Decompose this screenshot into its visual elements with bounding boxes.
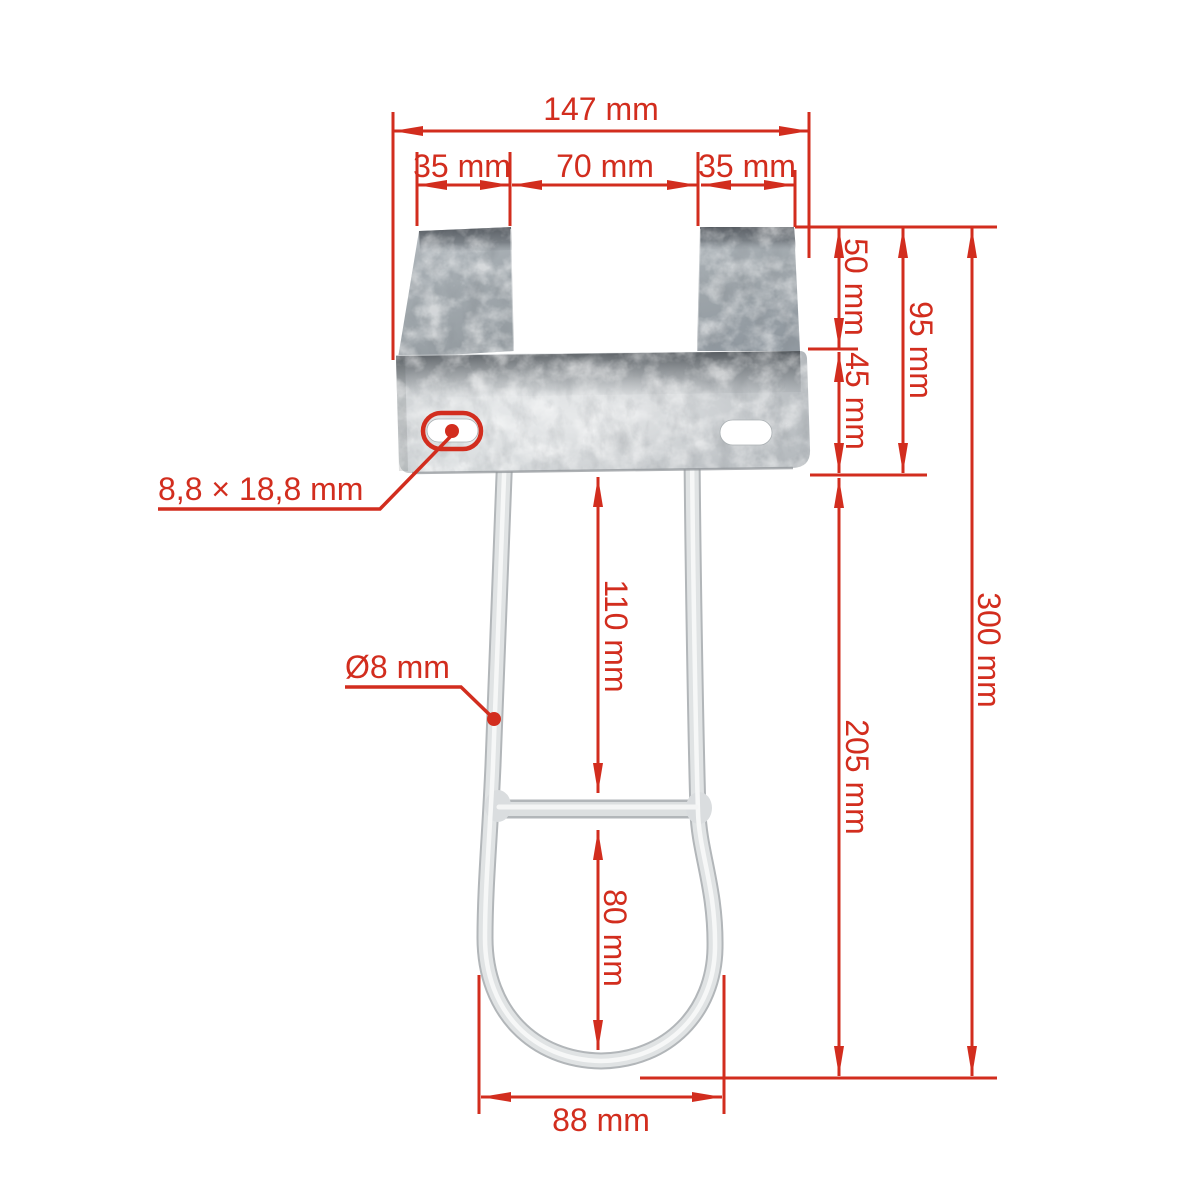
diagram-canvas: 147 mm 35 mm 70 mm 35 mm 50 mm 45 mm 95 … bbox=[0, 0, 1200, 1200]
label-center-gap: 70 mm bbox=[556, 148, 654, 184]
dimension-diagram: 147 mm 35 mm 70 mm 35 mm 50 mm 45 mm 95 … bbox=[0, 0, 1200, 1200]
label-upper-bow: 110 mm bbox=[598, 579, 634, 692]
label-total-width: 147 mm bbox=[543, 91, 659, 127]
label-bracket-height: 95 mm bbox=[903, 301, 939, 399]
label-left-tab: 35 mm bbox=[413, 148, 511, 184]
wire-callout-dot bbox=[487, 712, 501, 726]
label-tab-height: 50 mm bbox=[838, 238, 874, 336]
label-bow-length: 205 mm bbox=[839, 719, 875, 835]
dimension-labels: 147 mm 35 mm 70 mm 35 mm 50 mm 45 mm 95 … bbox=[158, 91, 1007, 1138]
label-bow-width: 88 mm bbox=[552, 1102, 650, 1138]
label-slot-size: 8,8 × 18,8 mm bbox=[158, 471, 363, 507]
label-plate-height: 45 mm bbox=[839, 352, 875, 450]
wire-callout-leader bbox=[345, 687, 494, 719]
label-overall-height: 300 mm bbox=[971, 592, 1007, 708]
label-wire-diameter: Ø8 mm bbox=[345, 649, 450, 685]
label-right-tab: 35 mm bbox=[698, 148, 796, 184]
slot-right bbox=[720, 420, 772, 445]
label-lower-bow: 80 mm bbox=[597, 889, 633, 987]
slot-callout-dot bbox=[445, 424, 459, 438]
